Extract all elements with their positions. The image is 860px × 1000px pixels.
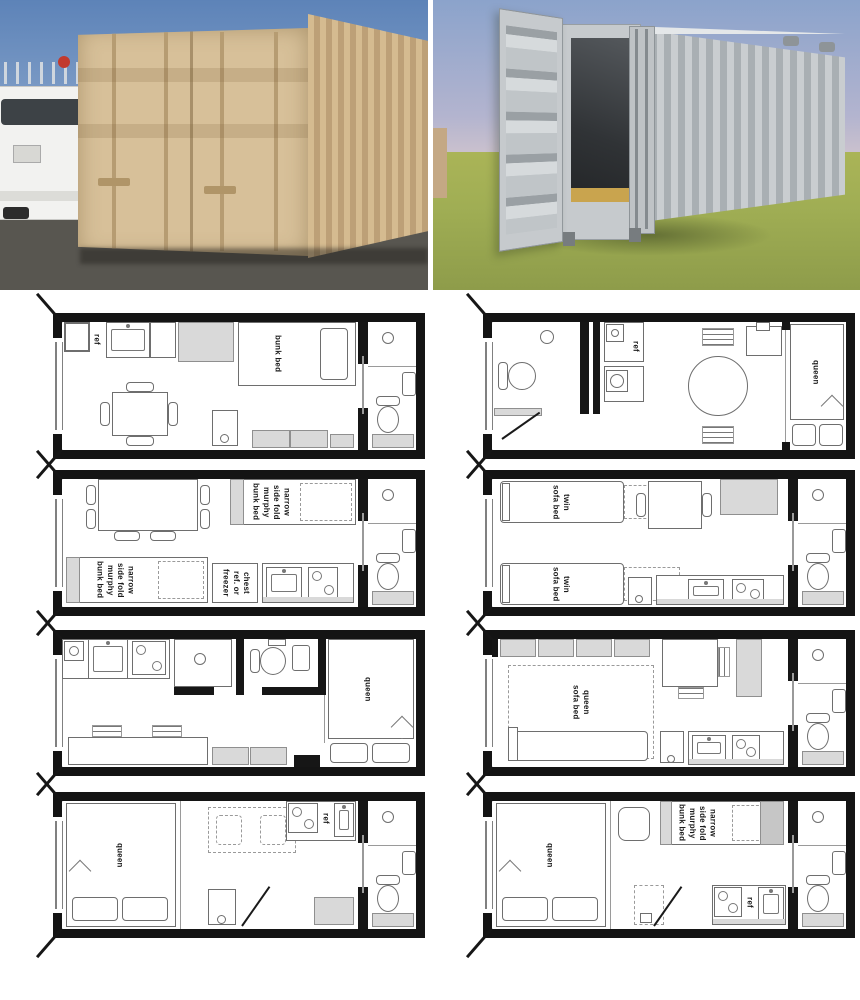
floor-plan-8: queen narrow side fold murphy bunk bed r… <box>483 792 855 938</box>
cabinet <box>314 897 354 925</box>
stool <box>152 725 182 737</box>
chair <box>100 402 110 426</box>
partition-line <box>180 801 181 929</box>
shower-drain <box>812 489 824 501</box>
corner-casting <box>819 42 835 52</box>
license-plate <box>13 145 41 163</box>
sliding-door <box>792 835 794 893</box>
chair <box>702 493 712 517</box>
ref-label: ref <box>91 324 101 354</box>
desk-stool <box>635 595 643 603</box>
sofa-seat <box>250 747 287 765</box>
door-handle <box>204 186 236 194</box>
shower-drain <box>382 811 394 823</box>
table-pedestal <box>678 687 704 699</box>
twin-sofa-label: twin sofa bed <box>550 565 571 603</box>
counter-edge <box>657 599 783 604</box>
murphy-bed-cabinet <box>660 801 672 845</box>
toilet-bowl <box>377 563 399 590</box>
floor-plan-7: queen ref <box>53 792 425 938</box>
bathroom-sink <box>832 529 846 553</box>
shower-divider <box>368 523 416 524</box>
sliding-door <box>362 835 364 893</box>
kitchen-sink <box>106 322 150 358</box>
toilet-tank <box>806 553 830 563</box>
bathroom-vanity <box>372 434 414 448</box>
floor-plan-3: narrow side fold murphy bunk bed narrow … <box>53 470 425 616</box>
shower-divider <box>798 523 846 524</box>
murphy-bed-fold-outline <box>158 561 204 599</box>
washer-drum <box>610 374 624 388</box>
overhead-cabinet <box>538 639 574 657</box>
wardrobe <box>736 639 762 697</box>
front-glass-wall <box>485 499 493 587</box>
bathroom-wall <box>788 887 798 929</box>
queen-sofa-bed <box>514 731 648 761</box>
kitchen-sink <box>266 567 302 599</box>
wall-stub <box>492 639 498 657</box>
van-wheel <box>3 207 29 219</box>
dining-table <box>648 481 702 529</box>
bathroom-sink <box>292 645 310 671</box>
chair <box>636 493 646 517</box>
desk-shelf <box>756 322 770 331</box>
folding-chair <box>718 647 730 677</box>
bathroom-wall <box>358 408 368 450</box>
toilet-tank <box>498 362 508 390</box>
front-glass-wall <box>485 821 493 909</box>
partition-stub <box>782 322 790 330</box>
bathroom-wall <box>593 322 600 414</box>
queen-label: queen <box>544 829 554 881</box>
open-container-door-line <box>36 928 63 959</box>
partition-line <box>324 695 325 743</box>
rack-red-cap <box>58 56 70 68</box>
container-leg <box>629 228 641 242</box>
appliance-knob <box>69 646 79 656</box>
floor-plan-1: ref bunk bed <box>53 313 425 459</box>
open-container-door-line <box>466 928 493 959</box>
corner-casting <box>783 36 799 46</box>
door-recess <box>78 68 308 82</box>
toilet-bowl <box>807 563 829 590</box>
shower-wall <box>174 687 214 695</box>
container-wood-floor <box>571 188 631 202</box>
partition-line <box>610 801 611 929</box>
stool <box>92 725 122 737</box>
front-glass-wall <box>485 342 493 430</box>
sofa-seat <box>290 430 328 448</box>
pillow <box>72 897 118 921</box>
table <box>662 639 718 687</box>
cabinet <box>330 434 354 448</box>
overhead-cabinet <box>500 639 536 657</box>
shower-drain <box>382 489 394 501</box>
container-side-wall <box>629 28 845 224</box>
tan-container-photo <box>0 0 428 290</box>
bathroom-vanity <box>372 913 414 927</box>
front-glass-wall <box>55 342 63 430</box>
fold-chair-outline <box>216 815 242 845</box>
bathroom-sink <box>402 372 416 396</box>
chair <box>200 509 210 529</box>
toilet-bowl <box>807 723 829 750</box>
cabinet <box>760 801 784 845</box>
round-table <box>688 356 748 416</box>
stove <box>288 803 318 833</box>
front-glass-wall <box>485 659 493 747</box>
dining-table <box>98 479 198 531</box>
chair <box>126 436 154 446</box>
shower-drain <box>812 811 824 823</box>
entry-opening <box>186 938 248 947</box>
lock-rod <box>645 29 648 229</box>
entry-door-swing <box>241 886 270 926</box>
chair <box>114 531 140 541</box>
pillow <box>819 424 843 446</box>
chair <box>126 382 154 392</box>
toilet-bowl <box>377 406 399 433</box>
desk-stool <box>217 915 226 924</box>
counter-edge <box>263 597 353 602</box>
bathroom-vanity <box>802 913 844 927</box>
open-left-door <box>499 8 563 252</box>
shower-drain <box>812 649 824 661</box>
bathroom-wall <box>580 322 589 414</box>
bathroom-vanity <box>802 591 844 605</box>
desk-stool <box>220 434 229 443</box>
murphy-bed-cabinet <box>230 479 244 525</box>
counter-edge <box>713 919 785 924</box>
partition-stub <box>782 442 790 450</box>
kitchen-sink <box>758 887 784 921</box>
page: { "palette": { "plan_wall": "#141414", "… <box>0 0 860 1000</box>
chair <box>86 509 96 529</box>
bathroom-wall <box>788 725 798 767</box>
door-seam <box>190 28 193 256</box>
queen-label: queen <box>362 663 372 715</box>
floor-plan-5: queen <box>53 630 425 776</box>
cabinet <box>720 479 778 515</box>
container-shadow <box>80 248 428 264</box>
fold-chair-outline <box>260 815 286 845</box>
pillow <box>320 328 348 380</box>
overhead-cabinet <box>614 639 650 657</box>
sofa-armrest <box>502 565 510 603</box>
kitchen-counter <box>150 322 176 358</box>
lock-rod <box>164 32 168 251</box>
floor-plan-6: queen sofa bed <box>483 630 855 776</box>
shower-divider <box>368 366 416 367</box>
front-glass-wall <box>55 821 63 909</box>
kitchen-sink <box>692 735 726 761</box>
burner <box>611 329 619 337</box>
sofa-armrest <box>508 727 518 761</box>
murphy-bed-label: narrow side fold murphy bunk bed <box>94 559 136 601</box>
toilet-tank <box>250 649 260 673</box>
cabinet <box>178 322 234 362</box>
queen-label: queen <box>114 829 124 881</box>
open-container-door-line <box>466 293 493 324</box>
folding-chair <box>702 426 734 444</box>
open-container-door-line <box>36 293 63 324</box>
partition-line <box>785 322 786 450</box>
sofa-seat <box>252 430 290 448</box>
pillow <box>502 897 548 921</box>
kitchen-sink <box>334 803 354 837</box>
container-front-doors <box>78 28 308 256</box>
bathroom-wall <box>318 639 326 695</box>
desk-stool <box>667 755 675 763</box>
front-glass-wall <box>55 499 63 587</box>
murphy-bed-cabinet <box>66 557 80 603</box>
bathroom-sink <box>402 529 416 553</box>
pillow <box>330 743 368 763</box>
floor-plan-2: ref queen <box>483 313 855 459</box>
desk-stool <box>640 913 652 923</box>
bathroom-vanity <box>802 751 844 765</box>
murphy-bed-label: narrow side fold murphy bunk bed <box>250 481 292 523</box>
counter-edge <box>689 759 783 764</box>
lock-rod <box>220 32 224 251</box>
murphy-bed-fold-outline <box>300 483 352 521</box>
kitchen-sink <box>88 639 128 679</box>
folding-chair <box>702 328 734 346</box>
ref-label: ref <box>630 332 640 360</box>
container-leg <box>563 232 575 246</box>
floor-plan-4: twin sofa bed twin sofa bed <box>483 470 855 616</box>
queen-label: queen <box>810 346 820 398</box>
murphy-bed-label: narrow side fold murphy bunk bed <box>676 803 718 843</box>
bunk-bed-label: bunk bed <box>272 330 282 378</box>
door-handle <box>98 178 130 186</box>
toilet-bowl <box>377 885 399 912</box>
stove <box>732 735 760 761</box>
container-side-wall <box>308 14 428 258</box>
overhead-cabinet <box>576 639 612 657</box>
door-vents <box>506 25 557 234</box>
gray-container-render <box>433 0 860 290</box>
toilet-bowl <box>807 885 829 912</box>
shower-drain <box>194 653 206 665</box>
queen-sofa-label: queen sofa bed <box>570 677 591 727</box>
background-structure <box>433 128 447 198</box>
pillow <box>372 743 410 763</box>
entry-opening <box>601 938 663 947</box>
toilet-tank <box>376 875 400 885</box>
van-window <box>1 99 89 125</box>
bathroom-sink <box>832 689 846 713</box>
door-recess <box>78 124 308 138</box>
refrigerator <box>64 322 90 352</box>
bathroom-wall <box>788 565 798 607</box>
shower-divider <box>368 845 416 846</box>
shower-divider <box>798 683 846 684</box>
pillow <box>792 424 816 446</box>
sliding-door <box>792 513 794 571</box>
sofa-armrest <box>502 483 510 521</box>
stove <box>714 887 742 917</box>
sofa-seat <box>212 747 249 765</box>
sliding-door <box>362 513 364 571</box>
shower-divider <box>798 845 846 846</box>
stove <box>308 567 338 599</box>
shower-drain <box>382 332 394 344</box>
ref-label: ref <box>744 889 754 915</box>
toilet-bowl <box>260 647 286 675</box>
twin-sofa-label: twin sofa bed <box>550 483 571 521</box>
ceiling-light <box>540 330 554 344</box>
toilet-bowl <box>508 362 536 390</box>
toilet-tank <box>806 875 830 885</box>
pillow <box>122 897 168 921</box>
chest-fridge-label: chest ref. or freezer <box>220 565 251 601</box>
toilet-tank <box>806 713 830 723</box>
shelf <box>268 639 286 646</box>
lock-rod <box>112 32 116 251</box>
bathroom-vanity <box>372 591 414 605</box>
lock-rod <box>635 29 638 229</box>
right-door-panel <box>629 26 655 234</box>
armchair <box>618 807 650 841</box>
pillow <box>552 897 598 921</box>
sliding-door <box>792 673 794 731</box>
dining-table <box>112 392 168 436</box>
bathroom-sink <box>402 851 416 875</box>
bathroom-wall <box>236 639 244 695</box>
chair <box>150 531 176 541</box>
bathroom-wall <box>358 565 368 607</box>
chair <box>168 402 178 426</box>
open-doorway <box>571 38 631 202</box>
chair <box>86 485 96 505</box>
ref-label: ref <box>320 805 330 831</box>
toilet-tank <box>376 553 400 563</box>
wall-stub <box>294 755 320 767</box>
bathroom-sink <box>832 851 846 875</box>
bathroom-wall <box>262 687 318 695</box>
stove <box>132 641 166 675</box>
sliding-door <box>362 356 364 414</box>
chair <box>200 485 210 505</box>
toilet-tank <box>376 396 400 406</box>
bar-counter <box>68 737 208 765</box>
bathroom-wall <box>358 887 368 929</box>
lock-rod <box>274 32 278 251</box>
